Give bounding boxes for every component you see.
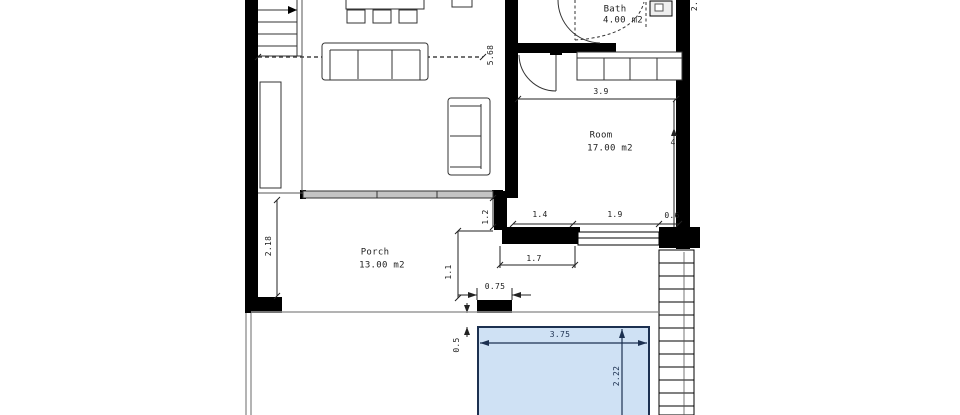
- closet: [577, 52, 682, 80]
- dim-porch-opening: 1.7: [526, 255, 541, 263]
- floor-plan-page: Bath 4.00 m2 Room 17.00 m2 Porch 13.00 m…: [0, 0, 960, 415]
- armchair-sofa: [448, 98, 490, 175]
- exterior-stairs: [659, 250, 694, 415]
- pool: [478, 327, 649, 415]
- dim-room-depth: 4: [670, 139, 675, 147]
- bath-sink: [650, 1, 672, 16]
- dim-pool-width: 3.75: [550, 331, 570, 339]
- room-label-bath: Bath: [604, 6, 627, 15]
- dining-set: [346, 0, 472, 23]
- sofa: [322, 43, 428, 80]
- dim-living-width: 5.68: [487, 45, 495, 65]
- room-area-porch: 13.00 m2: [359, 262, 405, 271]
- counter-cabinet: [260, 82, 281, 188]
- room-area-bath: 4.00 m2: [603, 17, 643, 26]
- dim-room-width: 3.9: [593, 88, 608, 96]
- dim-wall-offset: 1.2: [482, 209, 490, 224]
- dim-win-seg-b: 1.9: [607, 211, 622, 219]
- room-area-room: 17.00 m2: [587, 145, 633, 154]
- hall-door: [519, 55, 556, 91]
- dim-porch-depth: 2.18: [265, 236, 273, 256]
- dim-pillar-width: 0.75: [485, 283, 505, 291]
- interior-stairs: [258, 0, 302, 56]
- floor-plan-drawing: [0, 0, 960, 415]
- dim-stub-offset: 1.1: [445, 264, 453, 279]
- dim-edge-partial: 2.: [691, 1, 699, 11]
- room-label-porch: Porch: [361, 249, 390, 258]
- room-label-room: Room: [590, 132, 613, 141]
- stair-direction-arrow: [288, 6, 297, 14]
- dim-pool-depth: 2.22: [613, 366, 621, 386]
- dim-pool-gap: 0.5: [453, 337, 461, 352]
- dim-win-seg-a: 1.4: [532, 211, 547, 219]
- dim-win-seg-c: 0.6: [664, 212, 679, 220]
